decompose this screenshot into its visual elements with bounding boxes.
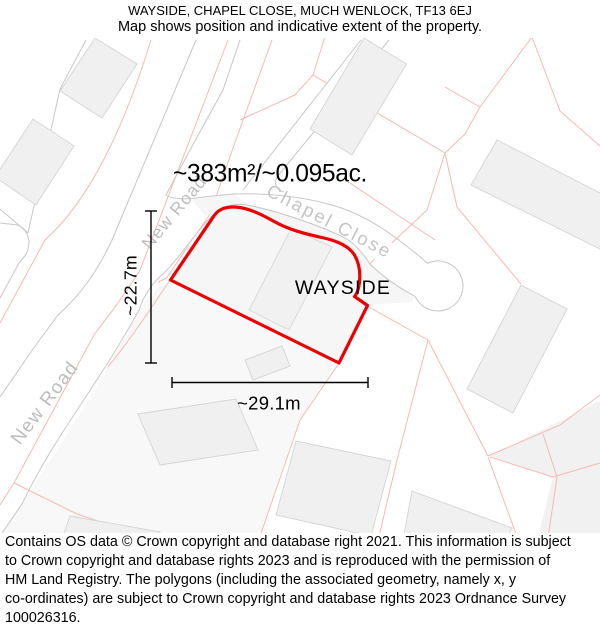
svg-text:WAYSIDE: WAYSIDE	[295, 277, 391, 299]
svg-text:~29.1m: ~29.1m	[237, 393, 301, 414]
svg-text:~383m²/~0.095ac.: ~383m²/~0.095ac.	[173, 161, 367, 188]
svg-text:~22.7m: ~22.7m	[120, 255, 140, 316]
